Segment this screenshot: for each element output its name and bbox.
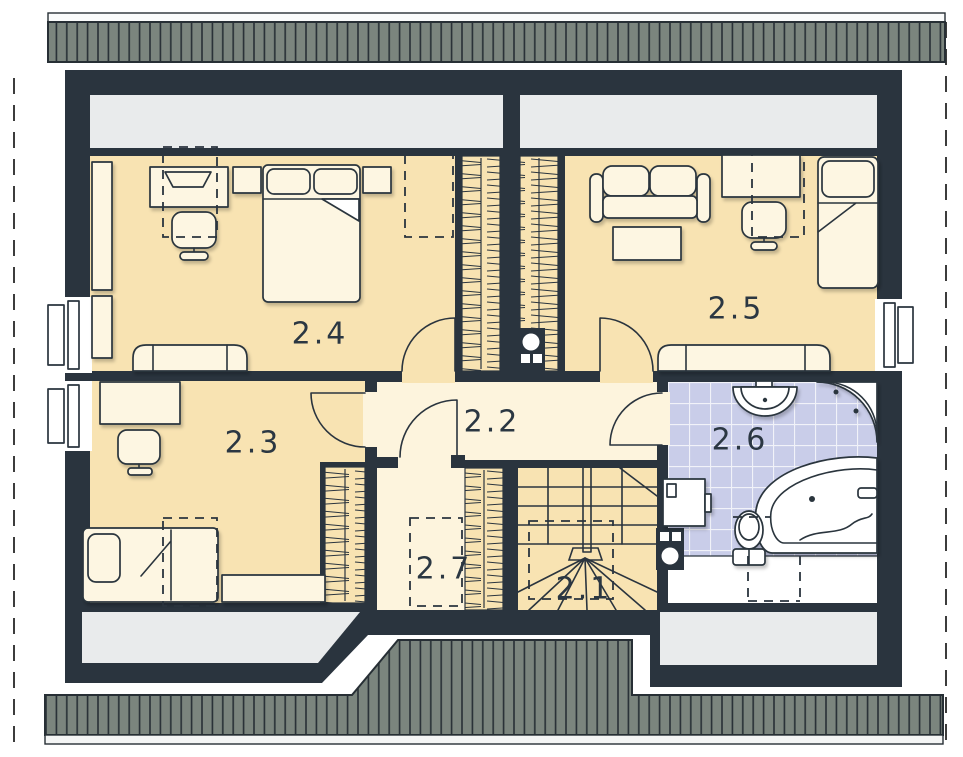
desk-icon [100, 382, 180, 424]
room-label-2-2: 2.2 [464, 405, 521, 440]
ridge-connector-wall [503, 70, 520, 156]
wardrobe-icon [92, 162, 112, 290]
chimney-icon [656, 528, 684, 570]
sofa-icon [658, 345, 830, 371]
floor-plan: 2.1 2.2 2.3 2.4 2.5 2.6 2.7 [0, 0, 963, 757]
room-label-2-3: 2.3 [225, 426, 282, 461]
room-label-2-6: 2.6 [712, 423, 769, 458]
desk-icon [722, 155, 800, 197]
room-label-2-7: 2.7 [416, 552, 473, 587]
dresser-icon [222, 575, 325, 602]
room-label-2-5: 2.5 [708, 292, 765, 327]
toilet-icon [733, 511, 765, 565]
roof-slope-area-top [90, 95, 877, 148]
coffee-table-icon [613, 227, 681, 260]
wardrobe-icon [465, 468, 503, 610]
wardrobe-icon [325, 467, 365, 603]
single-bed-icon [818, 157, 878, 288]
wardrobe-icon [92, 296, 112, 358]
room-2-7-floor [377, 457, 465, 610]
nightstand-icon [233, 167, 261, 193]
roof-slope-area-bottom-left [82, 612, 360, 663]
roof-slope-area-bottom-right [660, 612, 877, 665]
washing-machine-icon [663, 479, 711, 526]
sofa-icon [133, 345, 247, 371]
window-icon [875, 299, 913, 371]
room-label-2-4: 2.4 [292, 317, 349, 352]
chimney-icon [517, 328, 545, 372]
double-bed-icon [263, 165, 360, 302]
window-icon [48, 297, 92, 373]
floor-plan-drawing [0, 0, 963, 757]
single-bed-icon [83, 528, 218, 602]
nightstand-icon [363, 167, 391, 193]
room-label-2-1: 2.1 [556, 572, 613, 607]
laptop-icon [165, 172, 211, 187]
roof-eaves-top [48, 13, 945, 62]
bathroom-knee-band [668, 556, 877, 603]
window-icon [48, 381, 92, 451]
wardrobe-icon [462, 156, 500, 371]
